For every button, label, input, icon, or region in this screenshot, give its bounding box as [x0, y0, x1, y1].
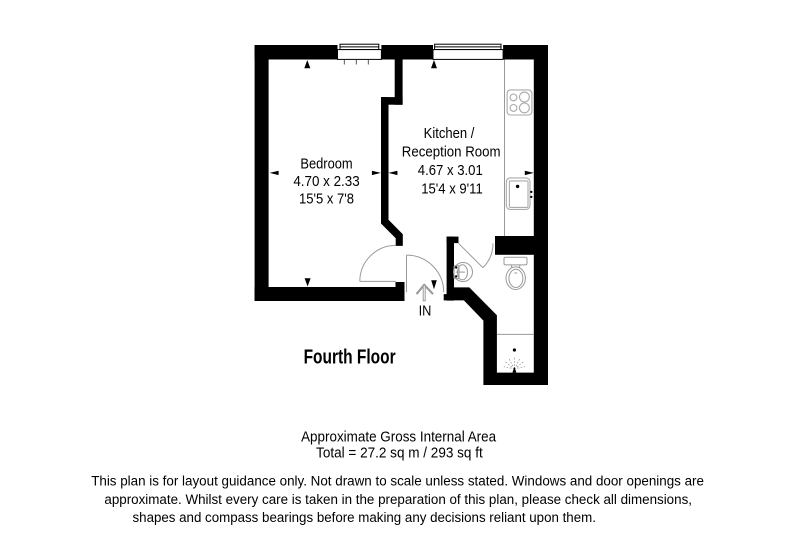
svg-text:This plan is for layout guidan: This plan is for layout guidance only. N… — [91, 474, 704, 489]
svg-text:Kitchen /: Kitchen / — [424, 126, 476, 142]
svg-text:Reception Room: Reception Room — [402, 145, 501, 161]
svg-text:4.67 x 3.01: 4.67 x 3.01 — [418, 163, 483, 179]
svg-text:Fourth Floor: Fourth Floor — [304, 347, 396, 369]
svg-text:4.70 x 2.33: 4.70 x 2.33 — [293, 174, 359, 190]
svg-text:shapes and compass bearings be: shapes and compass bearings before makin… — [133, 510, 596, 525]
svg-text:15'4 x 9'11: 15'4 x 9'11 — [421, 182, 483, 198]
svg-text:Total = 27.2 sq m / 293 sq ft: Total = 27.2 sq m / 293 sq ft — [316, 445, 483, 461]
svg-text:15'5 x 7'8: 15'5 x 7'8 — [299, 191, 354, 207]
svg-text:Bedroom: Bedroom — [300, 157, 352, 173]
svg-text:approximate. Whilst every care: approximate. Whilst every care is taken … — [104, 492, 692, 507]
svg-text:Approximate Gross Internal Are: Approximate Gross Internal Area — [301, 430, 497, 446]
svg-text:IN: IN — [419, 303, 432, 320]
